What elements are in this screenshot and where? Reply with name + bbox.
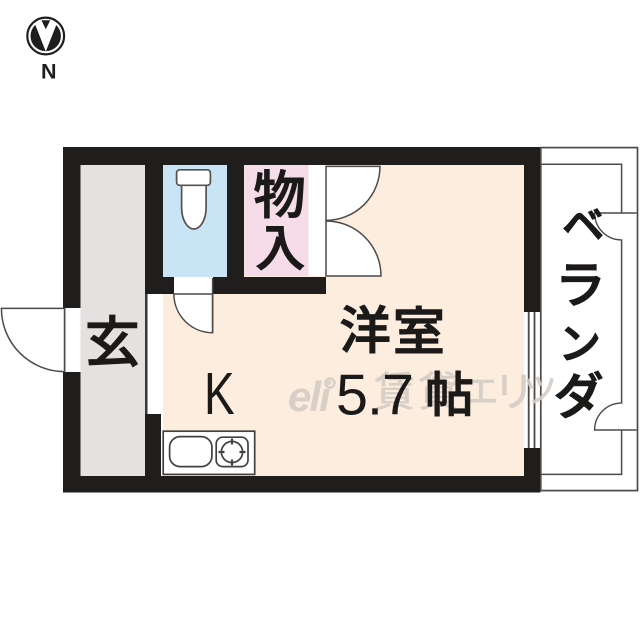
- svg-text:5.7: 5.7: [336, 364, 413, 428]
- svg-text:K: K: [204, 362, 235, 428]
- svg-text:N: N: [41, 60, 57, 84]
